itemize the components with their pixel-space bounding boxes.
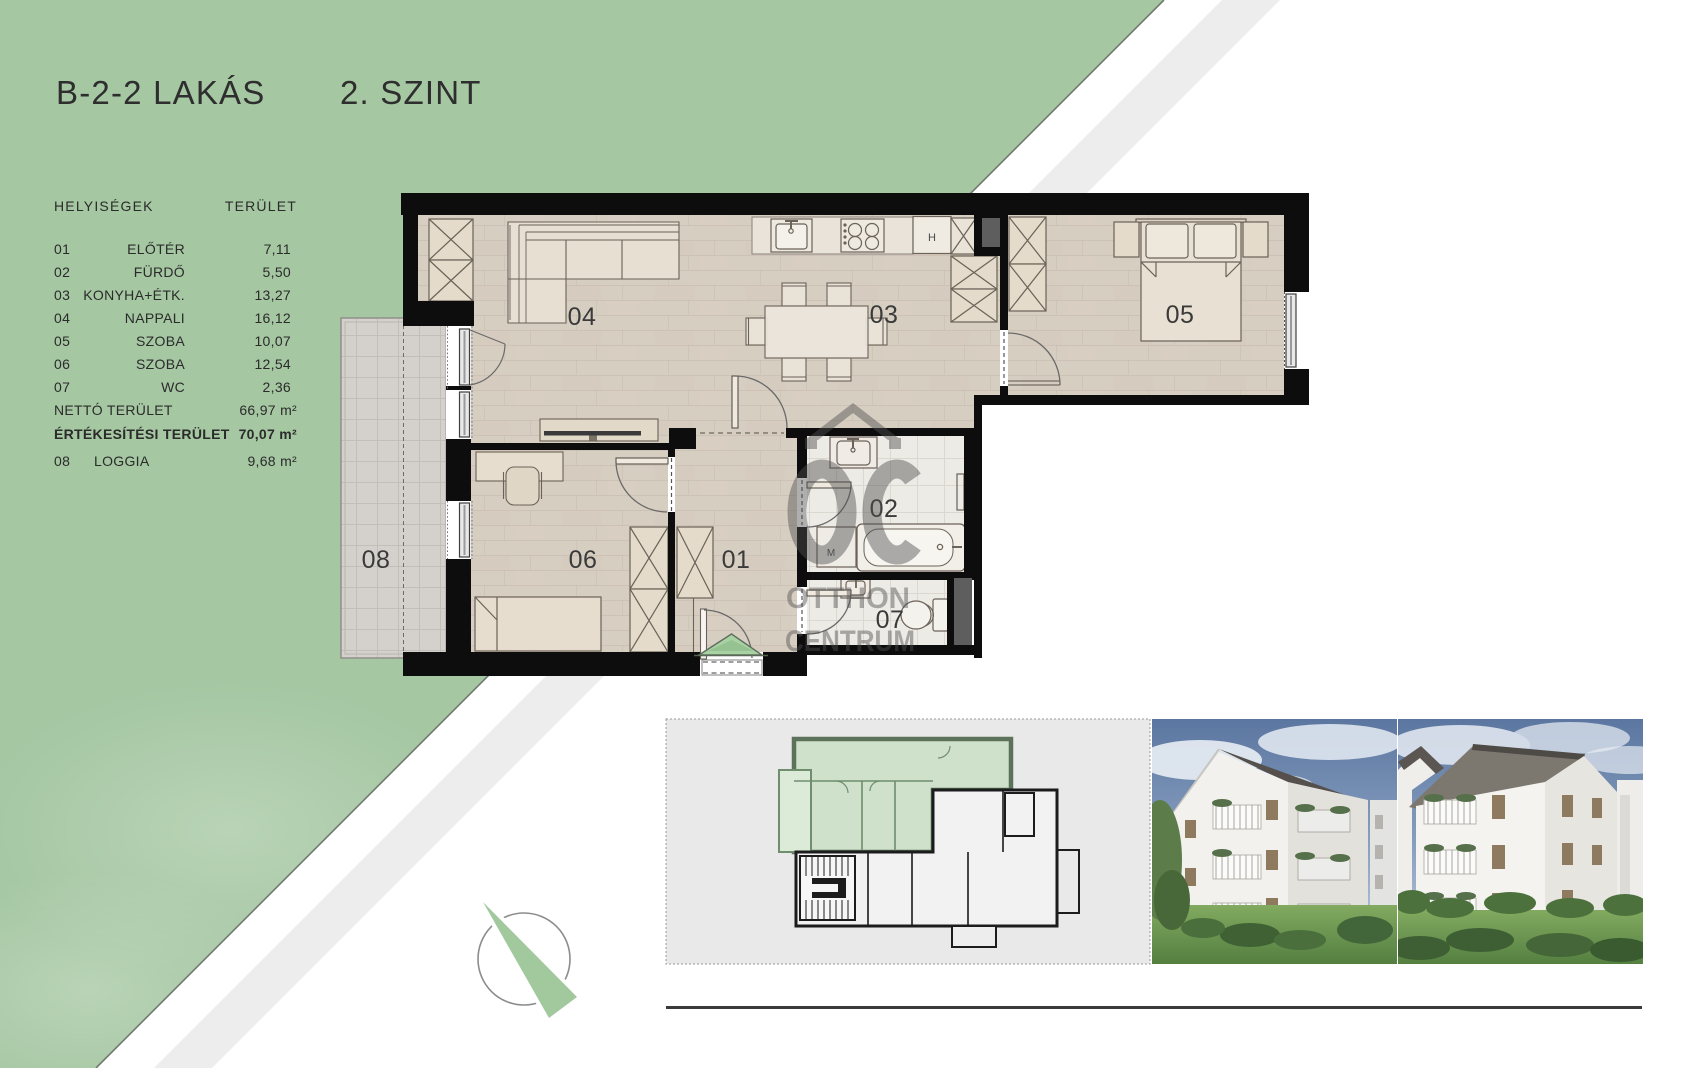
svg-text:05: 05 xyxy=(1166,301,1195,329)
svg-text:13,27: 13,27 xyxy=(254,287,291,303)
svg-text:CENTRUM: CENTRUM xyxy=(785,625,915,658)
svg-text:10,07: 10,07 xyxy=(254,333,291,349)
svg-text:SZOBA: SZOBA xyxy=(136,333,185,349)
svg-text:LOGGIA: LOGGIA xyxy=(94,453,150,469)
svg-text:TERÜLET: TERÜLET xyxy=(225,197,297,214)
svg-text:ÉRTÉKESÍTÉSI TERÜLET: ÉRTÉKESÍTÉSI TERÜLET xyxy=(54,426,230,442)
svg-text:SZOBA: SZOBA xyxy=(136,356,185,372)
svg-text:70,07 m²: 70,07 m² xyxy=(239,426,297,442)
svg-text:08: 08 xyxy=(54,453,70,469)
svg-text:07: 07 xyxy=(54,379,70,395)
svg-text:05: 05 xyxy=(54,333,70,349)
svg-text:16,12: 16,12 xyxy=(254,310,291,326)
svg-text:01: 01 xyxy=(722,546,751,574)
svg-text:WC: WC xyxy=(161,379,185,395)
svg-text:ELŐTÉR: ELŐTÉR xyxy=(127,241,185,257)
svg-text:OTTHON: OTTHON xyxy=(786,582,910,615)
svg-text:01: 01 xyxy=(54,241,70,257)
svg-text:2,36: 2,36 xyxy=(263,379,291,395)
svg-text:NAPPALI: NAPPALI xyxy=(125,310,185,326)
svg-text:06: 06 xyxy=(569,546,598,574)
svg-text:KONYHA+ÉTK.: KONYHA+ÉTK. xyxy=(83,287,185,303)
svg-text:7,11: 7,11 xyxy=(264,241,291,257)
svg-text:08: 08 xyxy=(362,546,391,574)
svg-text:66,97 m²: 66,97 m² xyxy=(239,402,297,418)
svg-text:06: 06 xyxy=(54,356,70,372)
svg-text:H: H xyxy=(928,232,936,244)
svg-text:9,68 m²: 9,68 m² xyxy=(247,453,297,469)
svg-text:NETTÓ TERÜLET: NETTÓ TERÜLET xyxy=(54,401,173,418)
svg-text:5,50: 5,50 xyxy=(263,264,291,280)
svg-text:2. SZINT: 2. SZINT xyxy=(340,74,482,111)
svg-text:03: 03 xyxy=(870,301,899,329)
svg-text:FÜRDŐ: FÜRDŐ xyxy=(134,263,185,280)
svg-text:HELYISÉGEK: HELYISÉGEK xyxy=(54,198,154,214)
svg-text:02: 02 xyxy=(54,264,70,280)
svg-text:B-2-2 LAKÁS: B-2-2 LAKÁS xyxy=(56,74,265,111)
svg-text:04: 04 xyxy=(568,303,597,331)
svg-text:12,54: 12,54 xyxy=(254,356,291,372)
svg-text:04: 04 xyxy=(54,310,70,326)
svg-text:03: 03 xyxy=(54,287,70,303)
